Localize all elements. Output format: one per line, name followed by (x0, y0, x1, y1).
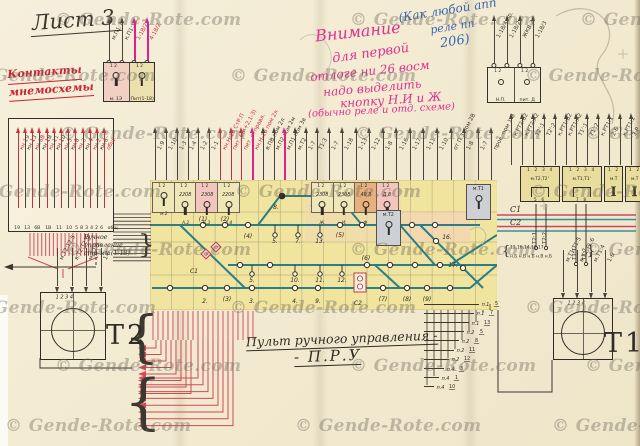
panel-key-cell: 1 22308И. (333, 182, 356, 213)
wire-line (620, 118, 621, 165)
wire-line (61, 132, 62, 208)
wire-arrow-icon (509, 111, 513, 119)
wire-arrow-icon (618, 111, 622, 119)
wire-arrow-icon (207, 125, 211, 133)
wire-line (396, 132, 397, 180)
wire-arrow-icon (381, 125, 385, 133)
winding-symbol (573, 187, 591, 197)
wire-line (90, 132, 91, 208)
terminal-row: п.15 (424, 298, 502, 307)
scanned-schematic-sheet: Лист 3 Контакты мнемосхемы (Как любой ап… (0, 0, 640, 446)
wire: кн.1В (36, 124, 43, 208)
panel-gray-cell: м.Т1 (466, 184, 491, 220)
wire-line-h (424, 386, 434, 387)
wire-line (122, 22, 123, 63)
cell-label: Пит(1-18) (130, 96, 153, 101)
cell-number: 2208 (222, 192, 234, 197)
wire-line-h (424, 377, 439, 378)
cell-label: м.Т2 (383, 212, 394, 217)
wire: 1-18 (336, 124, 350, 180)
wire: к.РТ1:А2 (560, 110, 571, 165)
wire: 1-18/4 пр. (487, 12, 500, 66)
wire-line (188, 132, 189, 180)
wire-line (39, 132, 40, 208)
wire-line (410, 132, 411, 180)
wire: кн.13 (21, 124, 28, 208)
wire: кн.5 (57, 124, 64, 208)
wire-arrow-icon (553, 111, 557, 119)
terminal-row: п.410 (424, 381, 502, 390)
pin-label: 6 (100, 225, 103, 230)
pin-numbers: 1 2 (629, 167, 640, 172)
transformer-core-icon (51, 308, 95, 352)
cell-label: Н.П. (496, 97, 506, 102)
pin-numbers: 1 2 (202, 183, 212, 188)
cell-label: А.4 (225, 220, 232, 225)
np-box-wires: 1-18/4 пр.1-18/2ЖКВ:21-18/3 (487, 12, 539, 66)
wire: к.РТ1:1 (593, 110, 604, 165)
wire: от П.3 пом 2В (444, 124, 458, 180)
wire: 1-11 (417, 124, 431, 180)
wire-line (317, 132, 318, 180)
wire-arrow-icon (564, 111, 568, 119)
wire-arrow-icon (272, 125, 276, 133)
cell-number: 49.8 (360, 192, 371, 197)
winding-symbol (531, 187, 549, 197)
wire-line (605, 250, 606, 292)
relay-cell: 1 2 Н.П. (488, 68, 514, 102)
pin-numbers: 1 2 (521, 68, 534, 73)
cell-label: м.2 (160, 211, 168, 216)
pin-numbers: 1 2 (158, 183, 168, 188)
wire: 1-18/2 (128, 14, 141, 63)
wire-arrow-icon (132, 15, 136, 23)
wire-arrow-icon (250, 125, 254, 133)
terminal-name: п.4 (437, 384, 445, 389)
wire-line (631, 118, 632, 165)
wire: 1-9 (150, 124, 161, 180)
left-block-wires: кн.19кн.13кн.6Вкн.1Вкн.11кн.10кн.5кн.8кн… (14, 124, 108, 208)
panel-key-cell: 1 2м.2 (152, 182, 175, 213)
wire-label: 1-18/3 (534, 20, 548, 39)
key-icon (318, 201, 326, 216)
wire-arrow-icon (340, 125, 344, 133)
wire-arrow-icon (95, 125, 99, 133)
pin-numbers: 1 2 (494, 68, 507, 73)
wire: пров. пом 1-В (484, 124, 498, 180)
key-icon (138, 72, 146, 87)
component-box: 1 2 3 4м.Т1,Т1'7 8 (562, 166, 602, 202)
wire-line (231, 132, 232, 180)
brace-icon: } (138, 232, 155, 258)
coil-symbol: I (610, 186, 616, 199)
terminal-row: п.211 (424, 344, 502, 353)
wire-arrow-icon (45, 125, 49, 133)
pin-numbers: 7 8 (576, 197, 588, 202)
np-box: 1 2 Н.П. 1 2 пит. Д (487, 67, 541, 103)
wire-arrow-icon (531, 111, 535, 119)
wire-line (369, 132, 370, 180)
pin-numbers: 1 2 (136, 63, 148, 68)
component-label: м.Т1,Т1' (573, 176, 591, 181)
panel-key-cell: 1 22308Б.3 (195, 182, 218, 213)
cell-number: 2208 (179, 192, 191, 197)
key-cell-row: 1 2м.21 22208А.21 22308Б.31 22208А.41 22… (150, 180, 497, 310)
wire-line (566, 118, 567, 165)
wire-arrow-icon (30, 125, 34, 133)
c1-line-label: С1 (510, 205, 521, 214)
terminal-pin: 12 (464, 356, 470, 362)
paper-edge (634, 0, 640, 446)
wire-line (383, 132, 384, 180)
button-contact-block: кн.19кн.13кн.6Вкн.1Вкн.11кн.10кн.5кн.8кн… (8, 118, 114, 232)
panel-gray-cell: м.Т2 (376, 210, 401, 246)
pin-label: 6В (35, 225, 41, 230)
cell-label: Ф (364, 220, 368, 225)
wire: к.РТ2:А2 (517, 110, 528, 165)
cell-label: Б.3 (203, 220, 210, 225)
wire-line (587, 118, 588, 165)
wire-arrow-icon (52, 125, 56, 133)
wire-line (555, 118, 556, 165)
watermark: © Gende-Rote.com (580, 10, 640, 30)
wire-line (18, 132, 19, 208)
terminal-name: п.2 (462, 339, 470, 344)
cell-label: м.Т1 (473, 186, 484, 191)
relay-box-left: 1 2 м. 1Э 1 2 Пит(1-18) (103, 62, 155, 102)
cell-label: Ж. (319, 220, 325, 225)
wire-line (451, 132, 452, 180)
t2-label: Т2 (106, 320, 147, 351)
wire: 1-10 (161, 124, 172, 180)
c2-line-label: С2 (510, 218, 521, 227)
panel-key-cell: 1 22208А.4 (217, 182, 240, 213)
wire-line (252, 132, 254, 180)
wire: 1-13 (349, 124, 363, 180)
key-icon (112, 72, 120, 87)
key-icon (181, 201, 189, 216)
wire-arrow-icon (293, 125, 297, 133)
pin-label: 3 (85, 225, 88, 230)
relay-cell: 1 2 Пит(1-18) (129, 63, 155, 101)
wire-line (423, 132, 424, 180)
terminal-pin: 1 (454, 375, 459, 381)
wire: Т2':1 (528, 110, 539, 165)
wire-line (544, 118, 545, 165)
wire: к.РТ1:В2 (549, 110, 560, 165)
wire-arrow-icon (164, 125, 168, 133)
pin-numbers: 1 2 (382, 183, 392, 188)
pin-numbers: 1 2 (608, 167, 620, 172)
wire-line (437, 132, 438, 180)
wire-line (47, 132, 48, 208)
pin-numbers: 1 2 (317, 183, 327, 188)
wire-arrow-icon (367, 125, 371, 133)
wire-arrow-icon (354, 125, 358, 133)
wire-line (263, 132, 264, 180)
pin-numbers: 1 2 (339, 183, 349, 188)
watermark: © Gende-Rote.com (295, 416, 482, 436)
wire: к.РТ2:В2 (506, 110, 517, 165)
wire-arrow-icon (88, 125, 92, 133)
wire: кн.Н-18 пом 2л (247, 124, 258, 180)
wire: 1-1 (204, 124, 215, 180)
brace-icon: } (587, 244, 595, 259)
wire-line (72, 248, 73, 286)
wire-arrow-icon (315, 125, 319, 133)
wire: 1-2 (193, 124, 204, 180)
wire: Т1':1 (571, 110, 582, 165)
wire-arrow-icon (394, 125, 398, 133)
wire: кн.Н:18 СтР.П (215, 124, 226, 180)
component-label: м.Т (631, 176, 638, 181)
wire: Т2':2 (538, 110, 549, 165)
wire-line (329, 132, 330, 180)
right-box-wires: к.РТ2:В2к.РТ2:А2Т2':1Т2':2к.РТ1:В2к.РТ1:… (506, 110, 636, 165)
terminal-name: п.1 (472, 320, 480, 325)
wire-line-h (424, 304, 479, 305)
wire-arrow-icon (327, 125, 331, 133)
panel-key-cell: 1 2Д.8уп.В (376, 182, 399, 213)
panel-top-wires-right: 1-71-181-131-121-81-161-171-111-10от П.3… (322, 124, 498, 180)
manual-control-caption: Ручное управление стр-ми (1-18) (84, 234, 136, 258)
wire-arrow-icon (449, 125, 453, 133)
pin-numbers: 1 2 3 4 (569, 167, 596, 172)
terminal-pin: 5 (479, 329, 484, 335)
coil-symbol: I (631, 186, 637, 199)
terminal-row: п.212 (424, 353, 502, 362)
component-label: м.Т2,Т2' (531, 176, 549, 181)
wire-arrow-icon (186, 125, 190, 133)
wire-line (155, 132, 156, 180)
wire: м.П1 пом 3в (279, 124, 290, 180)
wire-arrow-icon (462, 125, 466, 133)
wire-arrow-icon (435, 125, 439, 133)
wire-line (134, 22, 136, 63)
terminal-bracket: { 12,16,14,18,17 н.Б н.В н.Б н.В н.Б } (502, 243, 595, 261)
wire-line (520, 20, 521, 66)
wire-line-h (424, 359, 449, 360)
wire: 1-4 (182, 124, 193, 180)
wire: 1-12 (363, 124, 377, 180)
pin-label: 5 (75, 225, 78, 230)
cell-number: Д.8 (383, 192, 391, 197)
panel-key-cell: 1 22208А.2 (174, 182, 197, 213)
wire-arrow-icon (505, 13, 509, 21)
panel-key-cell: 1 249.8Ф (354, 182, 377, 213)
wire-line (177, 132, 178, 180)
pin-numbers: 1 2 (360, 183, 370, 188)
wire: 1-7 (471, 124, 485, 180)
wire-line (533, 118, 534, 165)
wire-arrow-icon (229, 125, 233, 133)
wire-arrow-icon (492, 13, 496, 21)
pin-numbers: 1 2 (223, 183, 233, 188)
pin-label: 13 (24, 225, 30, 230)
wire: кн.3 (72, 124, 79, 208)
t1-label: Т1 (604, 328, 640, 359)
pin-label: 19 (14, 225, 20, 230)
wire-arrow-icon (542, 111, 546, 119)
wire-line (75, 132, 76, 208)
pin-numbers: 1 2 (180, 183, 190, 188)
wire: Т1:3 (311, 124, 322, 180)
wire-arrow-icon (520, 111, 524, 119)
left-block-pin-row: 19136В1В1110583426общ (12, 221, 110, 230)
wire: кн.2 (86, 124, 93, 208)
wire-line-h (424, 322, 469, 323)
wire-line (511, 118, 512, 165)
pin-label: 8 (80, 225, 83, 230)
pin-numbers: 1 2 (110, 63, 122, 68)
wire-arrow-icon (196, 125, 200, 133)
pin-numbers: 5 6 (534, 197, 546, 202)
wire-label: 4-18/2 (148, 22, 162, 41)
component-label: м.Т (610, 176, 617, 181)
cell-number: 2308 (316, 192, 328, 197)
wire: кн.6 (94, 124, 101, 208)
wire-line (533, 20, 534, 66)
wire-arrow-icon (489, 125, 493, 133)
watermark: © Gende-Rote.com (525, 66, 640, 86)
wire-line (147, 22, 149, 63)
wire: м.Т2 (290, 124, 301, 180)
wire-arrow-icon (66, 125, 70, 133)
wire: 1-17 (403, 124, 417, 180)
wire-arrow-icon (476, 125, 480, 133)
wire: к.РТ1:2 (614, 110, 625, 165)
wire: 1-8 (376, 124, 390, 180)
wire-line-h (424, 368, 444, 369)
key-icon (385, 221, 393, 236)
relay-cell: 1 2 м. 1Э (104, 63, 129, 101)
terminal-pin: 10 (449, 384, 455, 390)
pin-label: 4 (90, 225, 93, 230)
wire: кн.10 (50, 124, 57, 208)
cell-label: И. (342, 220, 347, 225)
terminal-name: п.4 (442, 375, 450, 380)
wire: ЖКВ:2 (513, 12, 526, 66)
terminal-name: п.2 (457, 348, 465, 353)
component-box: 1 2 3 4м.Т2,Т2'5 6 (520, 166, 560, 202)
wire-line (68, 132, 69, 208)
wire-arrow-icon (175, 125, 179, 133)
wire: Т1':2 (582, 110, 593, 165)
wire: 1-Б (598, 248, 612, 298)
key-icon (362, 201, 370, 216)
wire-line (464, 132, 465, 180)
wire: кн.8 (65, 124, 72, 208)
mimic-contacts-label: Контакты мнемосхемы (7, 61, 94, 102)
wire: кн.6В (28, 124, 35, 208)
terminal-pin: 8 (474, 338, 479, 344)
wire-line (507, 20, 508, 66)
wire-line (32, 132, 33, 208)
wire-arrow-icon (518, 13, 522, 21)
wire-line (609, 118, 610, 165)
wire-line (522, 118, 523, 165)
wire-arrow-icon (218, 125, 222, 133)
wire: 1-7 (301, 124, 312, 180)
wire-line (576, 118, 577, 165)
wire: пит. отправл. (236, 124, 247, 180)
lamp-icon (498, 79, 504, 85)
wire-arrow-icon (421, 125, 425, 133)
key-icon (225, 201, 233, 216)
wire-arrow-icon (408, 125, 412, 133)
wire: 4-18/2 (141, 14, 154, 63)
key-icon (340, 201, 348, 216)
wire-line (356, 132, 357, 180)
wire-arrow-icon (23, 125, 27, 133)
terminal-pin: 13 (484, 320, 490, 326)
wire-arrow-icon (304, 125, 308, 133)
wire-arrow-icon (531, 13, 535, 21)
terminal-row: п.43 (424, 362, 502, 371)
component-box: 1 2м.ТI (604, 166, 623, 202)
watermark: © Gende-Rote.com (552, 416, 640, 436)
wire-line (166, 132, 167, 180)
transformer-box-row: 1 2 3 4м.Т2,Т2'5 61 2 3 4м.Т1,Т1'7 81 2м… (520, 166, 640, 202)
wire: 1-10 (430, 124, 444, 180)
wire-arrow-icon (73, 125, 77, 133)
pin-label: 11 (56, 225, 62, 230)
panel-title-abbr: - П.Р.У (294, 346, 362, 367)
wire-line (83, 132, 84, 208)
key-icon (203, 201, 211, 216)
wire: 1-7 (322, 124, 336, 180)
wire-arrow-icon (16, 125, 20, 133)
wire: м.П2 пом 2м (268, 124, 279, 180)
cell-number: 2308 (201, 192, 213, 197)
pin-numbers: 1 2 3 4 (527, 167, 554, 172)
cell-label: А.2 (182, 220, 189, 225)
wire-line (295, 132, 296, 180)
terminal-pin: 7 (489, 310, 494, 316)
wire: 1-18/2 (500, 12, 513, 66)
pin-label: 2 (95, 225, 98, 230)
transformer-t2: 1 2 3 4 (40, 292, 106, 360)
terminal-name: п.4 (447, 366, 455, 371)
terminal-pin: 11 (469, 347, 475, 353)
wire-arrow-icon (585, 111, 589, 119)
wire-arrow-icon (59, 125, 63, 133)
wire-arrow-icon (282, 125, 286, 133)
component-box: 1 2м.ТI (625, 166, 640, 202)
wire-line-h (424, 350, 454, 351)
wire-arrow-icon (574, 111, 578, 119)
wire-line (491, 132, 492, 180)
terminal-row: п.113 (424, 316, 502, 325)
wire: 3-Р (625, 110, 636, 165)
wire: 1-18/3 (526, 12, 539, 66)
wire-line (104, 132, 105, 208)
terminal-pin: 3 (459, 366, 464, 372)
terminal-pin: 5 (494, 301, 499, 307)
wire: 2-Б (603, 110, 614, 165)
wire-line (274, 132, 275, 180)
wire: кн.19 (14, 124, 21, 208)
wire-label: общ. (105, 136, 117, 151)
watermark: © Gende-Rote.com (5, 416, 192, 436)
wire-line (57, 248, 58, 286)
wire: м.Т2:Т2:5 (50, 246, 65, 292)
brace-icon: { (124, 372, 162, 432)
transformer-core-icon (561, 311, 605, 355)
wire-line (97, 132, 98, 208)
wire: в.Т2:Т2:6 (65, 246, 80, 292)
terminal-letters: н.Б н.В н.Б н.В н.Б (510, 254, 552, 259)
